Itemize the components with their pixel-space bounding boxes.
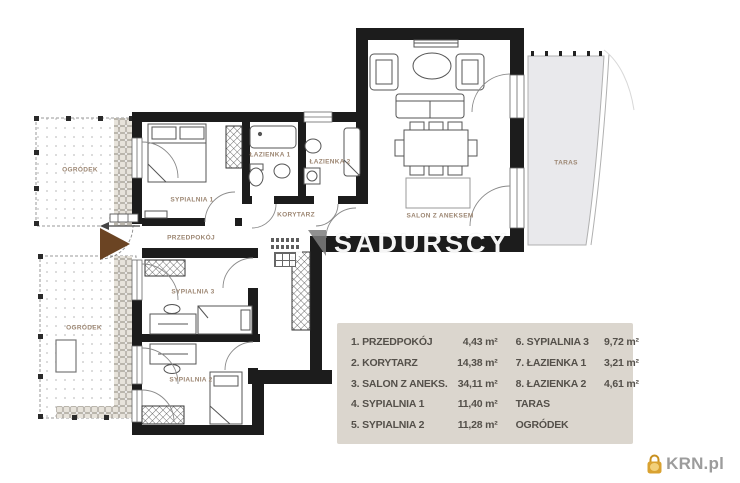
legend-row: 7. ŁAZIENKA 1 3,21 m²	[516, 357, 639, 369]
legend-room-name: 3. SALON Z ANEKS.	[351, 378, 448, 390]
doormat	[110, 214, 138, 222]
desk-sypialnia-2	[150, 344, 196, 364]
legend-room-name: 5. SYPIALNIA 2	[351, 419, 424, 431]
legend-room-name: 6. SYPIALNIA 3	[516, 336, 589, 348]
watermark-grid-icon	[274, 252, 296, 267]
room-legend: 1. PRZEDPOKÓJ 4,43 m² 2. KORYTARZ 14,38 …	[337, 323, 633, 444]
wardrobe-sypialnia-1	[226, 126, 242, 168]
legend-row: 3. SALON Z ANEKS. 34,11 m²	[351, 378, 498, 390]
legend-row: 6. SYPIALNIA 3 9,72 m²	[516, 336, 639, 348]
legend-room-name: 1. PRZEDPOKÓJ	[351, 336, 432, 348]
bench-sypialnia-1	[145, 211, 167, 218]
sink-lazienka-1	[274, 164, 290, 178]
legend-room-area: 11,28 m²	[448, 419, 498, 431]
sofa-salon	[396, 94, 464, 118]
single-bed-sypialnia-2	[210, 372, 242, 424]
legend-room-name: TARAS	[516, 398, 550, 410]
room-label-ogrodek-bottom: OGRÓDEK	[66, 325, 102, 332]
watermark-text: SADURSCY	[334, 230, 510, 257]
legend-room-name: 2. KORYTARZ	[351, 357, 418, 369]
room-label-taras: TARAS	[554, 160, 577, 167]
washer-lazienka-2	[304, 168, 320, 184]
terrace	[528, 50, 634, 245]
coffee-table	[413, 53, 451, 79]
shower-lazienka-2	[344, 128, 360, 176]
legend-row: 4. SYPIALNIA 1 11,40 m²	[351, 398, 498, 410]
legend-room-area: 3,21 m²	[589, 357, 639, 369]
legend-column-2: 6. SYPIALNIA 3 9,72 m² 7. ŁAZIENKA 1 3,2…	[516, 336, 639, 431]
agency-watermark: SADURSCY	[268, 224, 510, 262]
room-label-przedpokoj: PRZEDPOKÓJ	[167, 235, 215, 242]
room-label-korytarz: KORYTARZ	[277, 212, 315, 219]
room-label-salon: SALON Z ANEKSEM	[406, 213, 473, 220]
legend-room-name: 8. ŁAZIENKA 2	[516, 378, 587, 390]
legend-column-1: 1. PRZEDPOKÓJ 4,43 m² 2. KORYTARZ 14,38 …	[351, 336, 498, 431]
terrace-edge-ticks	[531, 51, 602, 56]
wardrobe-sypialnia-3	[145, 260, 185, 276]
legend-row: 1. PRZEDPOKÓJ 4,43 m²	[351, 336, 498, 348]
wardrobe-sypialnia-2	[142, 406, 184, 424]
toilet-lazienka-1	[249, 164, 263, 186]
floor-plan-image: OGRÓDEK OGRÓDEK SYPIALNIA 1 PRZEDPOKÓJ Ł…	[0, 0, 740, 483]
room-label-sypialnia-2: SYPIALNIA 2	[169, 377, 212, 384]
single-bed-sypialnia-3	[198, 306, 252, 334]
legend-row: 5. SYPIALNIA 2 11,28 m²	[351, 419, 498, 431]
room-label-lazienka-1: ŁAZIENKA 1	[249, 152, 290, 159]
legend-room-name: 4. SYPIALNIA 1	[351, 398, 424, 410]
double-bed-sypialnia-1	[148, 124, 206, 182]
legend-room-area: 9,72 m²	[589, 336, 639, 348]
shelf-salon	[414, 40, 458, 47]
legend-row: TARAS	[516, 398, 639, 410]
room-label-lazienka-2: ŁAZIENKA 2	[309, 159, 350, 166]
dining-set	[395, 122, 477, 175]
legend-room-name: 7. ŁAZIENKA 1	[516, 357, 587, 369]
legend-room-area	[589, 398, 639, 410]
room-label-ogrodek-top: OGRÓDEK	[62, 167, 98, 174]
garden-bottom	[38, 254, 136, 420]
padlock-icon	[646, 454, 663, 474]
garden-planter	[56, 340, 76, 372]
legend-row: 8. ŁAZIENKA 2 4,61 m²	[516, 378, 639, 390]
bathtub-lazienka-1	[250, 126, 296, 148]
legend-room-area: 34,11 m²	[448, 378, 498, 390]
desk-sypialnia-3	[150, 314, 196, 334]
chair-sypialnia-3	[164, 305, 180, 314]
legend-room-area: 11,40 m²	[448, 398, 498, 410]
legend-room-area	[589, 419, 639, 431]
room-label-sypialnia-1: SYPIALNIA 1	[170, 197, 213, 204]
legend-row: OGRÓDEK	[516, 419, 639, 431]
sink-lazienka-2	[305, 139, 321, 153]
room-label-sypialnia-3: SYPIALNIA 3	[171, 289, 214, 296]
legend-room-area: 4,43 m²	[448, 336, 498, 348]
armchair-left	[370, 54, 398, 90]
legend-room-name: OGRÓDEK	[516, 419, 569, 431]
chair-sypialnia-2	[164, 365, 180, 374]
legend-row: 2. KORYTARZ 14,38 m²	[351, 357, 498, 369]
rug-salon	[406, 178, 470, 208]
krn-logo: KRN.pl	[646, 454, 724, 474]
legend-room-area: 4,61 m²	[589, 378, 639, 390]
watermark-triangle-icon	[308, 230, 326, 256]
legend-room-area: 14,38 m²	[448, 357, 498, 369]
krn-logo-text: KRN.pl	[666, 454, 724, 474]
armchair-right	[456, 54, 484, 90]
